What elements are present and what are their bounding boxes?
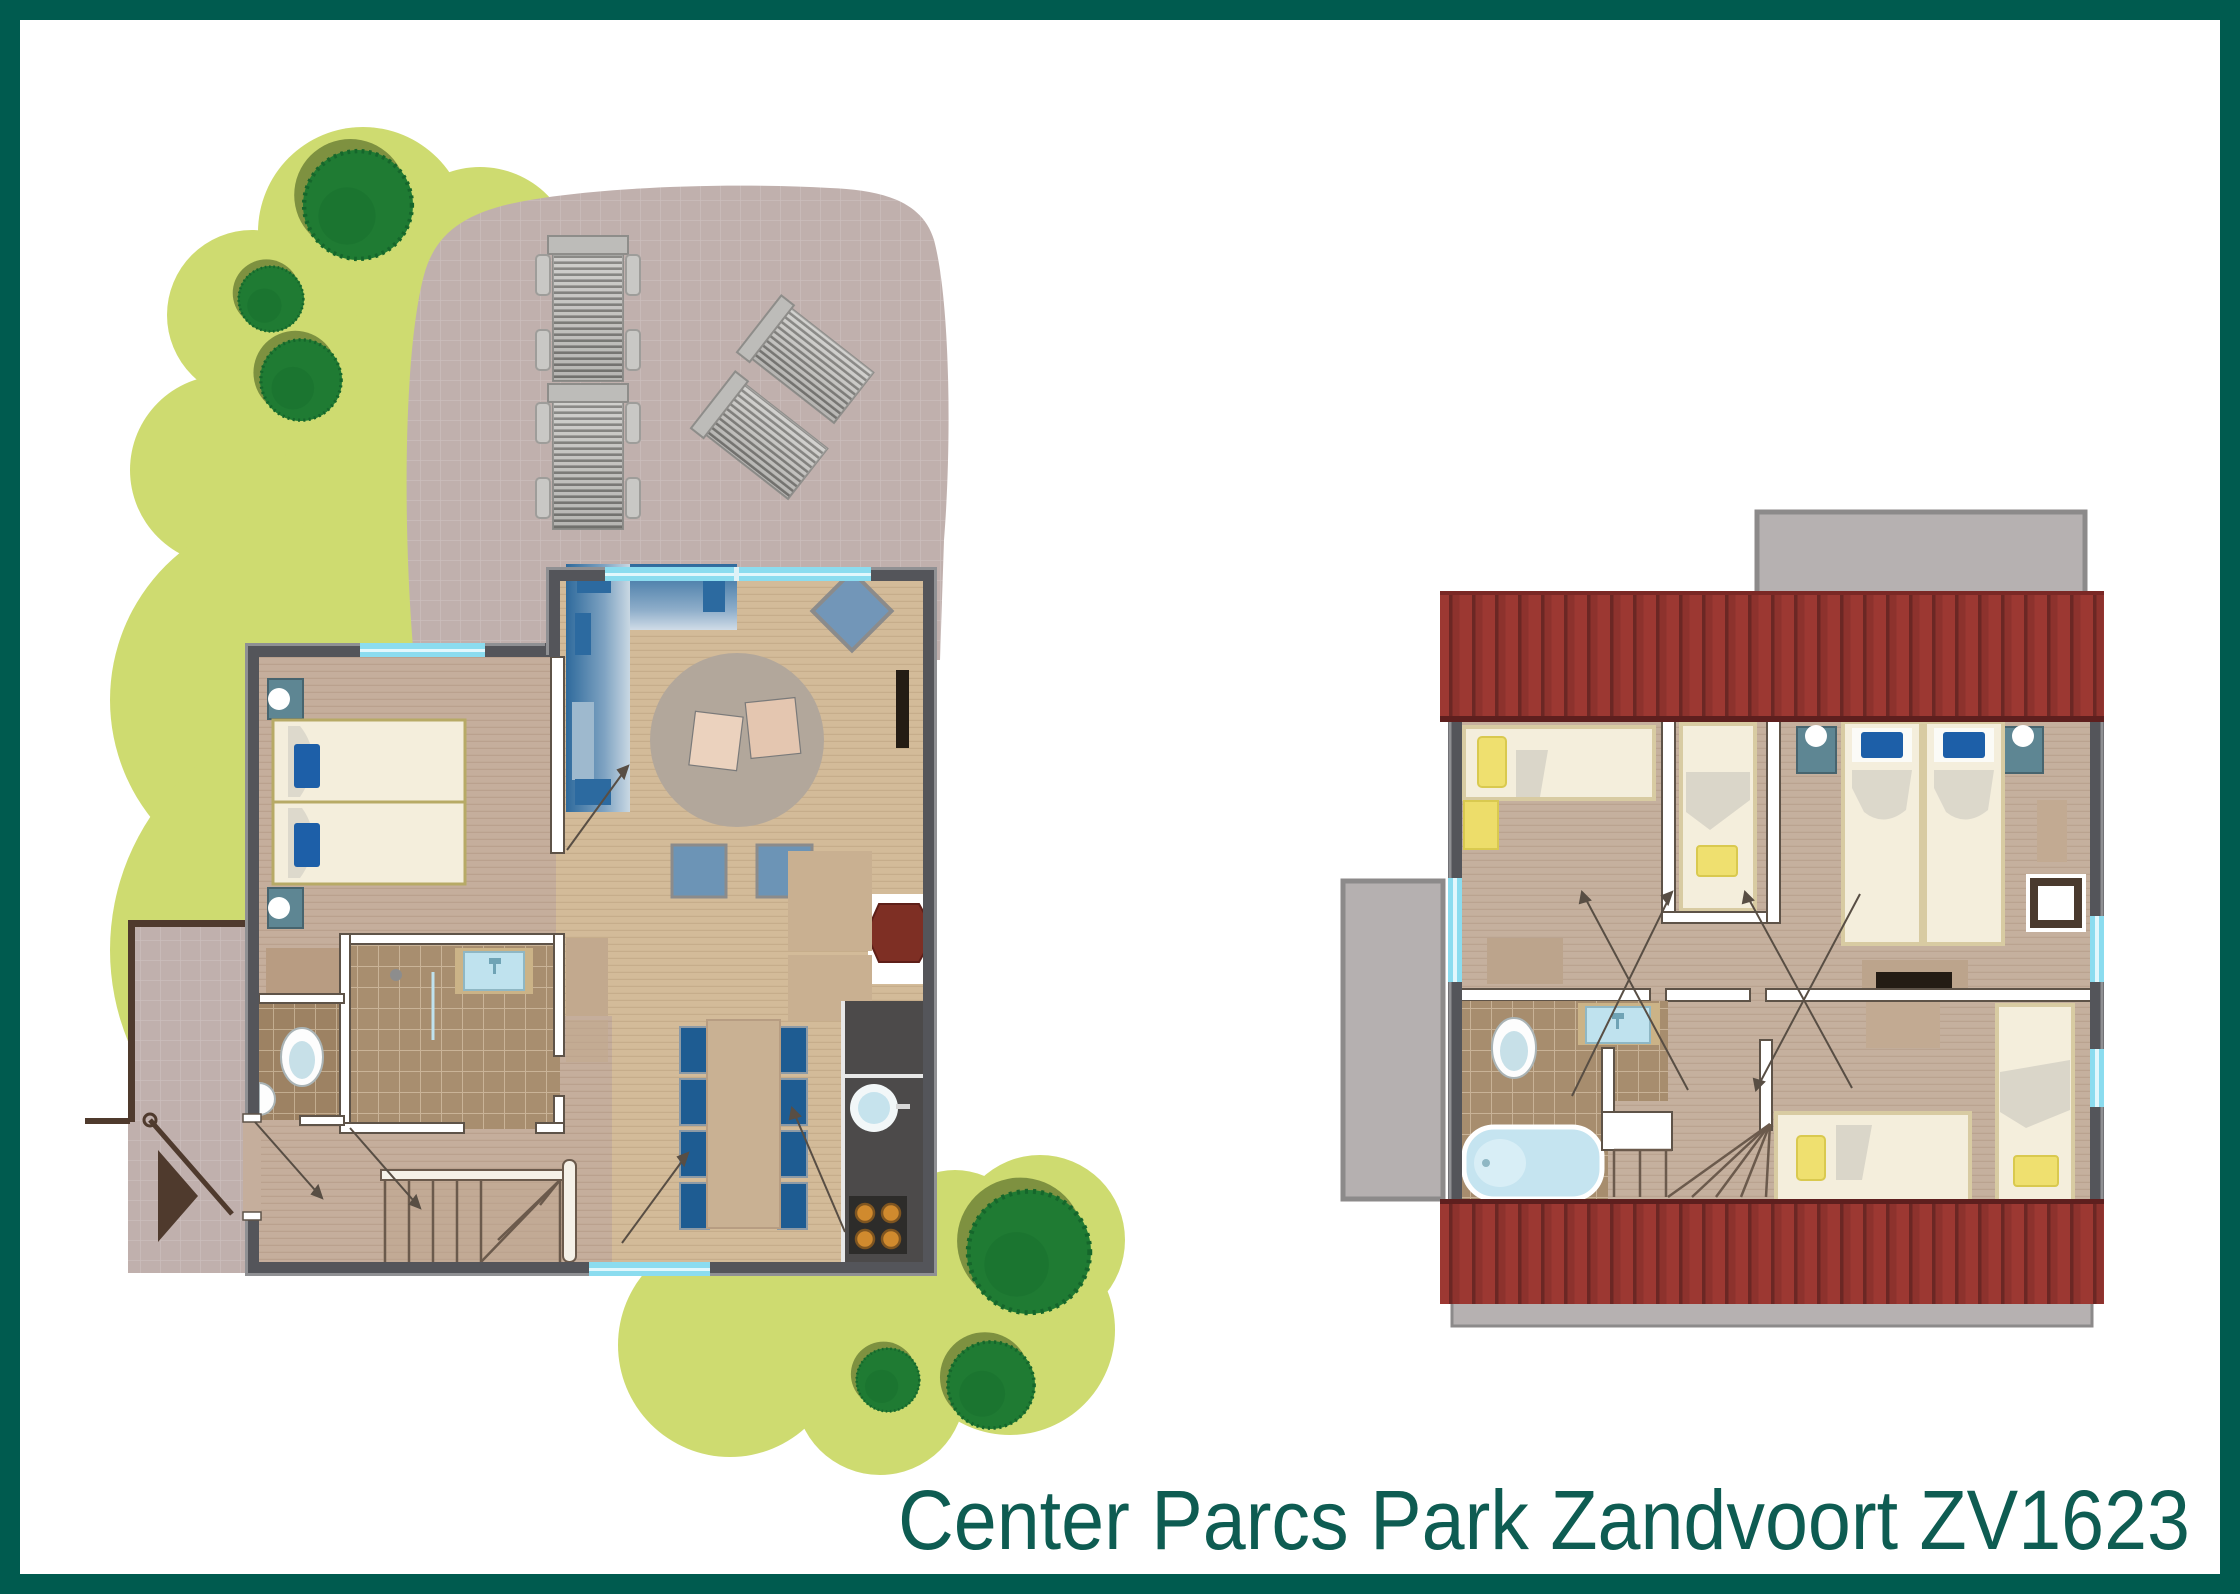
svg-text:Center Parcs Park Zandvoort ZV: Center Parcs Park Zandvoort ZV1623 <box>898 1473 2190 1567</box>
